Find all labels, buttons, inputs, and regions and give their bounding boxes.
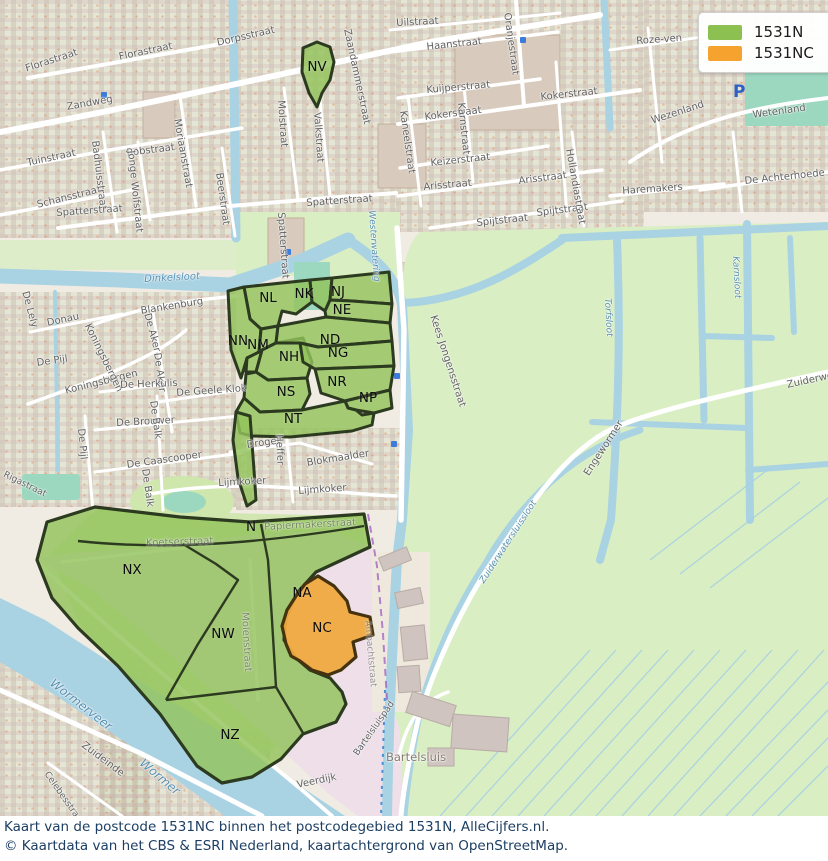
- map-canvas[interactable]: Florastraat Florastraat Zandweg Dorpsstr…: [0, 0, 828, 816]
- legend-item-1531n: 1531N: [708, 23, 828, 41]
- area-label-nn: NN: [228, 333, 248, 349]
- parking-icon: P: [733, 82, 745, 102]
- street-label: Koetserstraat: [146, 536, 213, 549]
- area-label-ne: NE: [333, 302, 352, 318]
- area-label-nw: NW: [211, 626, 234, 642]
- legend-swatch-orange: [708, 46, 742, 61]
- area-label-ng: NG: [328, 345, 349, 361]
- street-label: Uilstraat: [396, 16, 439, 29]
- place-label-bartelsluis: Bartelsluis: [386, 750, 446, 764]
- area-label-nh: NH: [279, 349, 299, 365]
- street-label: Heffer: [273, 434, 286, 465]
- legend-swatch-green: [708, 25, 742, 40]
- water-label: Karnsloot: [730, 256, 742, 299]
- legend-label: 1531NC: [754, 44, 814, 62]
- area-label-nl: NL: [259, 290, 277, 306]
- area-label-nv: NV: [307, 59, 326, 75]
- area-label-nz: NZ: [220, 727, 239, 743]
- map-caption: Kaart van de postcode 1531NC binnen het …: [0, 816, 828, 861]
- legend-item-1531nc: 1531NC: [708, 44, 828, 62]
- area-label-nr: NR: [327, 374, 346, 390]
- area-label-n: N: [246, 519, 256, 535]
- caption-line-2: © Kaartdata van het CBS & ESRI Nederland…: [4, 837, 828, 856]
- area-label-np: NP: [359, 390, 377, 406]
- legend-label: 1531N: [754, 23, 803, 41]
- map-svg: [0, 0, 828, 816]
- area-label-nx: NX: [122, 562, 141, 578]
- area-label-nm: NM: [247, 337, 269, 353]
- area-label-nj: NJ: [331, 284, 345, 300]
- green-strip: [0, 240, 236, 270]
- screenshot-root: Florastraat Florastraat Zandweg Dorpsstr…: [0, 0, 828, 861]
- area-label-nt: NT: [284, 411, 302, 427]
- legend: 1531N 1531NC: [698, 12, 828, 73]
- water-label: Torfsloot: [602, 298, 614, 337]
- caption-line-1: Kaart van de postcode 1531NC binnen het …: [4, 818, 828, 837]
- area-label-nk: NK: [295, 286, 314, 302]
- area-label-nc: NC: [312, 620, 332, 636]
- area-label-na: NA: [292, 585, 311, 601]
- street-label: De Herkulis: [120, 378, 178, 391]
- area-label-ns: NS: [277, 384, 296, 400]
